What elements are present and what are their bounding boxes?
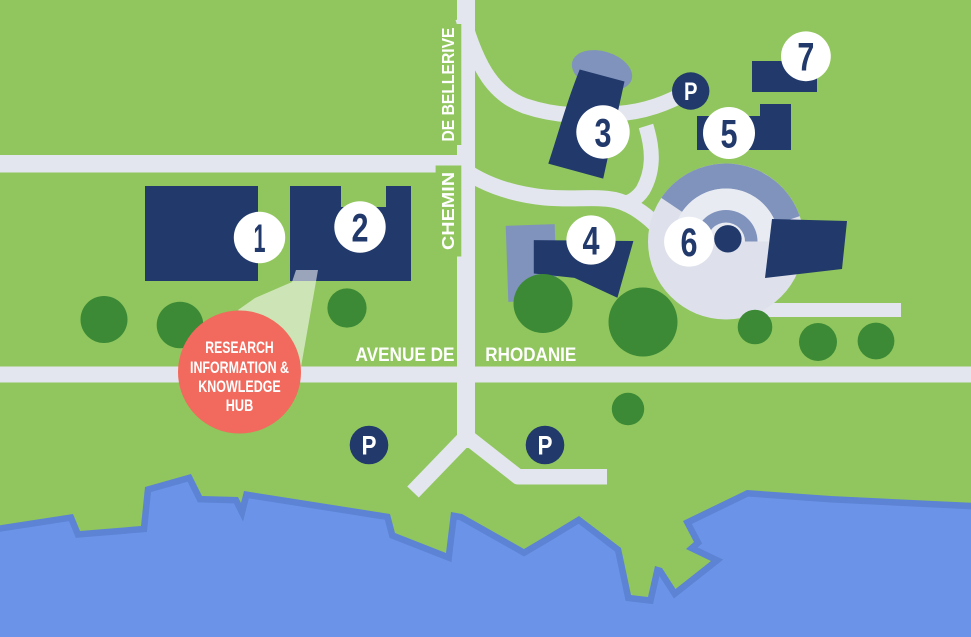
svg-text:7: 7 bbox=[797, 36, 814, 80]
svg-text:RHODANIE: RHODANIE bbox=[485, 345, 576, 366]
svg-text:CHEMIN: CHEMIN bbox=[438, 172, 458, 250]
svg-text:AVENUE DE: AVENUE DE bbox=[356, 345, 455, 366]
svg-text:P: P bbox=[538, 431, 553, 461]
svg-text:P: P bbox=[684, 78, 698, 106]
svg-text:KNOWLEDGE: KNOWLEDGE bbox=[198, 377, 281, 396]
svg-text:3: 3 bbox=[595, 111, 612, 155]
svg-text:P: P bbox=[362, 431, 377, 461]
svg-text:1: 1 bbox=[254, 217, 266, 261]
svg-text:2: 2 bbox=[352, 206, 369, 250]
svg-text:6: 6 bbox=[681, 221, 698, 265]
svg-text:DE BELLERIVE: DE BELLERIVE bbox=[438, 28, 458, 142]
svg-text:INFORMATION &: INFORMATION & bbox=[190, 358, 289, 377]
svg-text:5: 5 bbox=[721, 112, 738, 156]
svg-text:RESEARCH: RESEARCH bbox=[205, 338, 274, 357]
svg-text:HUB: HUB bbox=[226, 396, 254, 415]
svg-text:4: 4 bbox=[583, 219, 601, 263]
